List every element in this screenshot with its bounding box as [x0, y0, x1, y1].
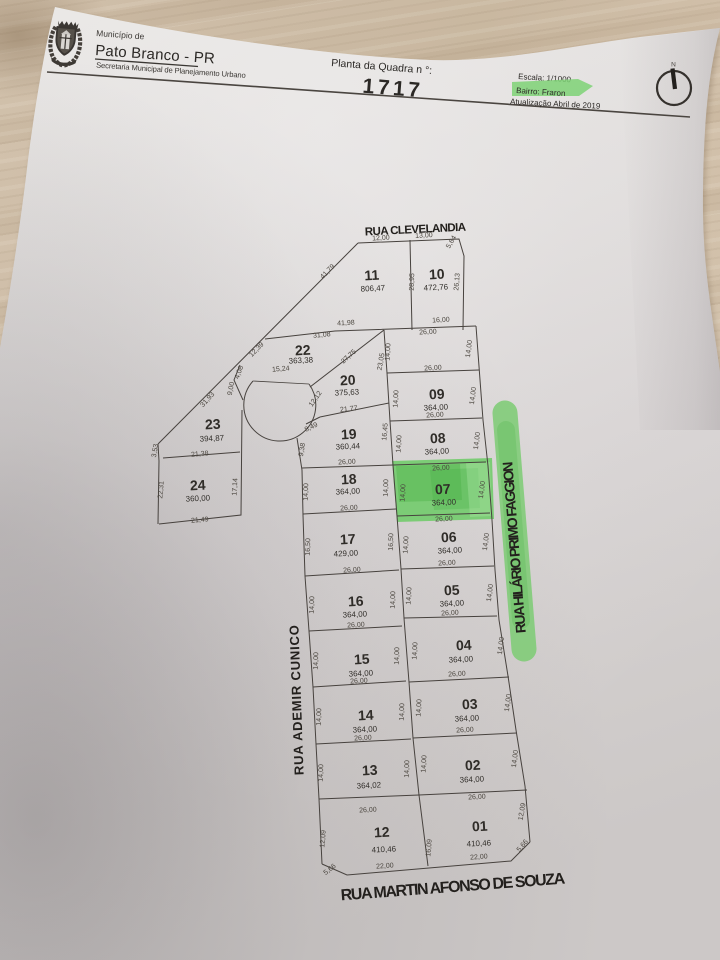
svg-text:14,00: 14,00 — [316, 708, 324, 726]
svg-text:26,00: 26,00 — [347, 622, 365, 630]
svg-text:26,00: 26,00 — [432, 465, 450, 473]
svg-text:375,63: 375,63 — [334, 387, 359, 397]
svg-text:10: 10 — [429, 266, 446, 283]
svg-text:806,47: 806,47 — [360, 283, 385, 293]
svg-text:14,00: 14,00 — [406, 587, 414, 605]
svg-text:14,00: 14,00 — [303, 483, 311, 501]
svg-text:26,00: 26,00 — [419, 329, 437, 337]
svg-text:364,00: 364,00 — [448, 654, 473, 664]
svg-text:14,00: 14,00 — [393, 390, 401, 408]
svg-text:28,95: 28,95 — [409, 273, 417, 291]
svg-text:17,14: 17,14 — [232, 478, 240, 496]
svg-text:26,00: 26,00 — [343, 567, 361, 575]
svg-text:14: 14 — [358, 707, 375, 724]
svg-text:364,00: 364,00 — [431, 497, 456, 507]
svg-text:472,76: 472,76 — [423, 282, 448, 292]
svg-text:14,00: 14,00 — [309, 596, 317, 614]
svg-text:360,44: 360,44 — [335, 441, 360, 451]
svg-text:14,00: 14,00 — [416, 699, 424, 717]
svg-text:364,00: 364,00 — [437, 545, 462, 555]
svg-text:12: 12 — [374, 824, 391, 841]
svg-text:26,00: 26,00 — [435, 516, 453, 524]
svg-text:364,00: 364,00 — [424, 446, 449, 456]
svg-text:16,50: 16,50 — [388, 533, 396, 551]
svg-text:15: 15 — [354, 651, 371, 668]
svg-text:26,00: 26,00 — [354, 735, 372, 743]
svg-text:14,00: 14,00 — [404, 760, 412, 778]
svg-text:364,02: 364,02 — [356, 780, 381, 790]
svg-text:14,00: 14,00 — [390, 591, 398, 609]
svg-text:364,00: 364,00 — [459, 774, 484, 784]
svg-text:364,00: 364,00 — [439, 598, 464, 608]
svg-text:364,00: 364,00 — [352, 724, 377, 734]
svg-text:1717: 1717 — [362, 75, 424, 103]
svg-text:22,00: 22,00 — [376, 862, 394, 870]
svg-text:03: 03 — [462, 696, 479, 713]
svg-text:16,50: 16,50 — [305, 538, 313, 556]
svg-text:26,00: 26,00 — [426, 412, 444, 420]
svg-text:14,00: 14,00 — [421, 755, 429, 773]
svg-text:364,00: 364,00 — [342, 609, 367, 619]
svg-text:364,00: 364,00 — [454, 713, 479, 723]
svg-text:410,46: 410,46 — [466, 838, 491, 848]
svg-text:26,00: 26,00 — [448, 671, 466, 679]
svg-text:12,00: 12,00 — [372, 235, 390, 243]
svg-text:07: 07 — [435, 481, 452, 498]
svg-text:14,00: 14,00 — [399, 703, 407, 721]
svg-text:14,00: 14,00 — [385, 343, 393, 361]
svg-text:11: 11 — [364, 267, 380, 284]
svg-text:04: 04 — [456, 637, 473, 654]
svg-text:09: 09 — [429, 386, 446, 403]
svg-text:13,00: 13,00 — [415, 232, 433, 240]
svg-text:14,00: 14,00 — [396, 435, 404, 453]
svg-text:08: 08 — [430, 430, 447, 447]
svg-text:394,87: 394,87 — [199, 433, 224, 443]
svg-text:26,00: 26,00 — [456, 727, 474, 735]
svg-text:N: N — [671, 62, 676, 69]
svg-text:14,00: 14,00 — [403, 536, 411, 554]
svg-text:26,00: 26,00 — [441, 610, 459, 618]
svg-text:26,00: 26,00 — [438, 560, 456, 568]
svg-text:17: 17 — [340, 531, 357, 548]
svg-text:02: 02 — [465, 757, 482, 774]
svg-text:14,00: 14,00 — [394, 647, 402, 665]
svg-text:26,00: 26,00 — [359, 807, 377, 815]
svg-text:05: 05 — [444, 582, 461, 599]
svg-text:13: 13 — [362, 762, 379, 779]
svg-text:24: 24 — [190, 477, 207, 494]
svg-text:26,00: 26,00 — [468, 794, 486, 802]
svg-text:14,00: 14,00 — [412, 642, 420, 660]
svg-text:429,00: 429,00 — [333, 548, 358, 558]
svg-text:26,00: 26,00 — [424, 365, 442, 373]
svg-text:363,38: 363,38 — [288, 355, 313, 365]
svg-text:41,98: 41,98 — [337, 320, 355, 328]
svg-text:26,00: 26,00 — [340, 505, 358, 513]
svg-text:16: 16 — [348, 593, 365, 610]
svg-text:14,00: 14,00 — [383, 479, 391, 497]
svg-text:06: 06 — [441, 529, 458, 546]
svg-text:16,00: 16,00 — [432, 317, 450, 325]
svg-text:14,00: 14,00 — [313, 652, 321, 670]
svg-text:22,00: 22,00 — [470, 853, 488, 861]
svg-text:20: 20 — [340, 372, 357, 389]
svg-text:14,00: 14,00 — [318, 764, 326, 782]
svg-text:410,46: 410,46 — [371, 844, 396, 854]
svg-text:26,00: 26,00 — [350, 678, 368, 686]
svg-text:23: 23 — [205, 416, 222, 433]
svg-text:26,00: 26,00 — [338, 459, 356, 467]
svg-text:364,00: 364,00 — [335, 486, 360, 496]
svg-text:19: 19 — [341, 426, 358, 443]
svg-text:360,00: 360,00 — [185, 493, 210, 503]
svg-text:01: 01 — [472, 818, 489, 835]
svg-text:14,00: 14,00 — [400, 484, 408, 502]
svg-text:18: 18 — [341, 471, 358, 488]
